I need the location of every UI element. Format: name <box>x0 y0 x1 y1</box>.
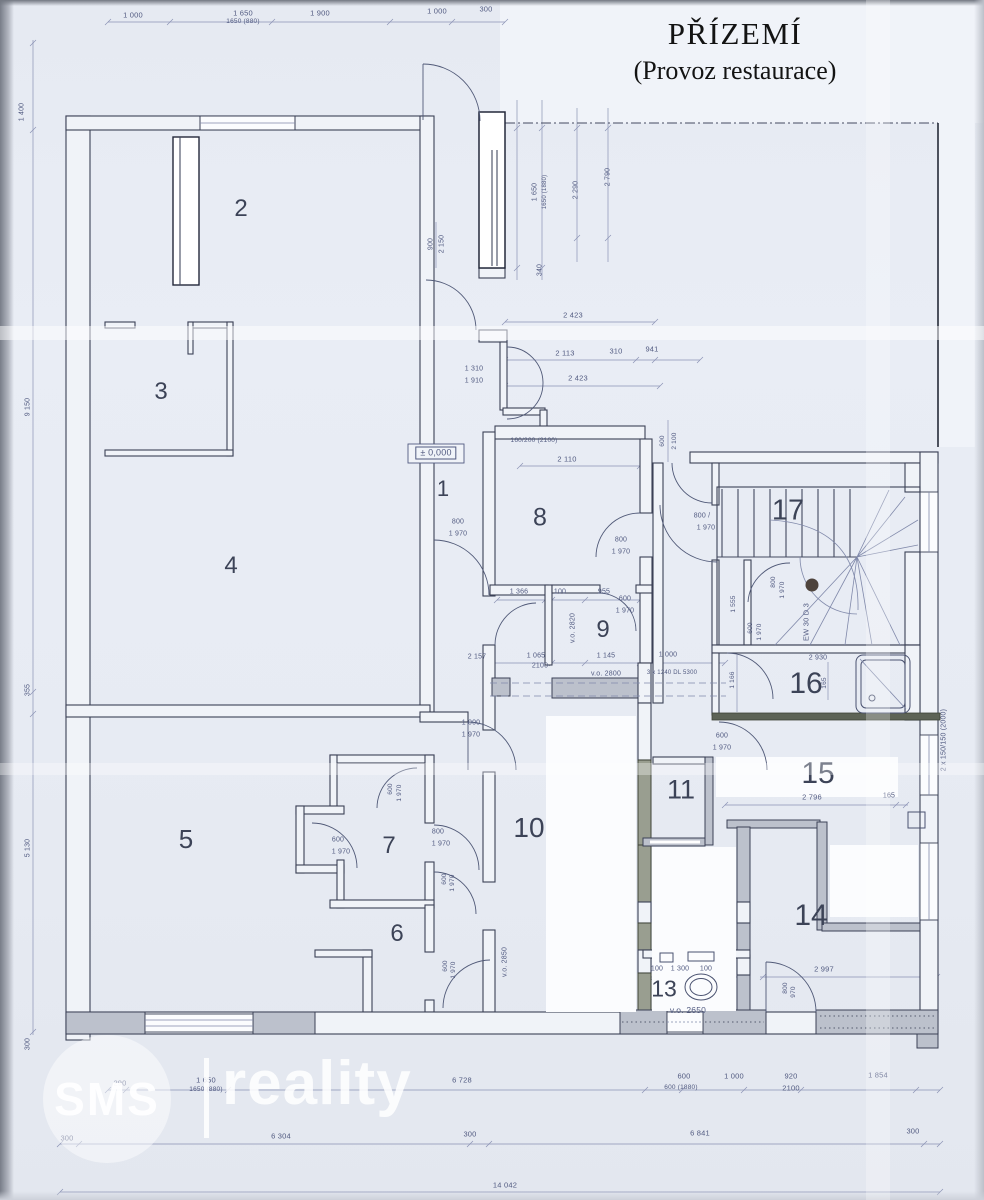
dimension-label: 5 130 <box>25 839 32 858</box>
room-number-11: 11 <box>667 777 695 804</box>
dimension-label: 970 <box>791 986 798 997</box>
dimension-label: 2100 <box>532 663 548 670</box>
dimension-label: 1 300 <box>671 966 690 973</box>
dimension-label: 355 <box>25 684 32 696</box>
dimension-label: 100 <box>651 966 663 973</box>
room-number-15: 15 <box>801 759 834 789</box>
room-number-10: 10 <box>513 814 544 842</box>
dimension-label: 2 423 <box>568 374 588 382</box>
dimension-label: v.o. 2650 <box>670 1006 706 1015</box>
room-number-1: 1 <box>437 478 449 500</box>
dimension-label: 300 <box>479 5 492 13</box>
dimension-label: 1 065 <box>527 653 546 660</box>
dimension-label: 1 970 <box>449 531 468 538</box>
dimension-label: 6 841 <box>690 1129 710 1137</box>
dimension-label: 1650 (880) <box>226 19 259 26</box>
dimension-label: 600 (1880) <box>664 1085 697 1092</box>
dimension-label: 1 650 <box>532 183 539 202</box>
dimension-label: 160/200 (2100) <box>511 438 558 445</box>
dimension-label: v.o. 2820 <box>570 613 577 643</box>
plan-title: PŘÍZEMÍ (Provoz restaurace) <box>505 16 965 86</box>
dimension-label: 1 970 <box>713 745 732 752</box>
dimension-label: 1 970 <box>450 874 457 891</box>
dimension-label: 920 <box>784 1072 797 1080</box>
dimension-label: 2 796 <box>802 793 822 801</box>
dimension-label: 1 555 <box>731 595 738 612</box>
dimension-label: 1 000 <box>724 1072 744 1080</box>
dimension-label: 1 166 <box>730 671 737 688</box>
dimension-label: 1 970 <box>757 623 764 640</box>
room-number-14: 14 <box>794 901 827 931</box>
dimension-label: 1 970 <box>697 525 716 532</box>
dimension-label: 1 366 <box>510 589 529 596</box>
dimension-label: 1 310 <box>465 366 484 373</box>
dimension-label: 2 150 <box>439 235 446 254</box>
plan-title-subtitle: (Provoz restaurace) <box>505 56 965 86</box>
dimension-label: 1 000 <box>427 7 447 15</box>
dimension-label: 100 <box>700 966 712 973</box>
dimension-label: 600 <box>332 837 344 844</box>
dimension-label: 2 157 <box>468 654 487 661</box>
room-number-3: 3 <box>154 380 167 404</box>
dimension-label: 600 <box>716 733 728 740</box>
dimension-label: 600 <box>660 435 667 446</box>
room-number-16: 16 <box>789 669 822 699</box>
room-number-8: 8 <box>533 506 547 531</box>
room-number-13: 13 <box>651 978 677 1001</box>
dimension-label: 1 970 <box>616 608 635 615</box>
dimension-label: 800 <box>783 982 790 993</box>
dimension-label: 1 854 <box>868 1071 888 1079</box>
room-number-5: 5 <box>179 826 193 852</box>
room-number-2: 2 <box>234 197 247 221</box>
dimension-label: 800 <box>615 537 627 544</box>
dimension-label: 3 x 1240 DL 5300 <box>647 670 697 676</box>
dimension-label: 165 <box>822 677 829 688</box>
dimension-label: 2 100 <box>672 432 679 449</box>
dimension-label: 6 728 <box>452 1076 472 1084</box>
dimension-label: 2 110 <box>557 455 576 463</box>
dimension-label: 340 <box>537 264 544 276</box>
room-number-7: 7 <box>382 834 395 858</box>
dimension-label: 800 <box>452 519 464 526</box>
room-number-9: 9 <box>596 618 609 642</box>
dimension-label: 1 000 <box>123 11 143 19</box>
dimension-label: 2 930 <box>809 655 828 662</box>
dimension-label: 2100 <box>782 1084 800 1092</box>
dimension-label: v.o. 2850 <box>502 947 509 977</box>
dimension-label: 1 000 <box>462 720 481 727</box>
room-number-6: 6 <box>390 922 403 946</box>
dimension-label: v.o. 2800 <box>591 671 621 678</box>
room-number-4: 4 <box>224 554 237 578</box>
dimension-label: 2 113 <box>555 349 574 357</box>
dimension-label: 900 <box>428 238 435 250</box>
dimension-label: 1650 (880) <box>189 1087 222 1094</box>
dimension-label: 941 <box>645 345 658 353</box>
dimension-label: 300 <box>906 1127 919 1135</box>
dimension-label: 6 304 <box>271 1132 291 1140</box>
dimension-label: 600 <box>677 1072 690 1080</box>
dimension-label: 600 <box>619 596 631 603</box>
dimension-label: 14 042 <box>493 1181 517 1189</box>
dimension-label: 1 000 <box>659 652 678 659</box>
level-marker-label: ± 0,000 <box>415 447 456 460</box>
dimension-label: 2 997 <box>814 965 834 973</box>
dimension-label: 600 <box>748 622 755 633</box>
dimension-label: 290 <box>113 1079 126 1087</box>
plan-title-main: PŘÍZEMÍ <box>505 16 965 52</box>
dimension-label: 1 650 <box>196 1076 216 1084</box>
dimension-label: 1 970 <box>432 841 451 848</box>
dimension-label: 1 400 <box>19 103 26 122</box>
dimension-label: 2 423 <box>563 311 583 319</box>
dimension-label: 1 970 <box>612 549 631 556</box>
dimension-label: 300 <box>463 1130 476 1138</box>
blueprint-sheet: 123456789101113141516171 0001 6501650 (8… <box>0 0 984 1200</box>
dimension-label: 1 900 <box>310 9 330 17</box>
dimension-label: 1 145 <box>597 653 616 660</box>
dimension-label: 1 910 <box>465 378 484 385</box>
dimension-label: 600 <box>442 873 449 884</box>
dimension-label: 1 970 <box>780 581 787 598</box>
dimension-label: 800 <box>771 576 778 587</box>
dimension-label: 2 790 <box>605 168 612 187</box>
dimension-label: 165 <box>883 793 895 800</box>
dimension-label: 1 650 <box>233 9 253 17</box>
dimension-label: 1 970 <box>462 732 481 739</box>
dimension-label: EW 30 D 3 <box>802 603 810 641</box>
dimension-label: 1 970 <box>451 961 458 978</box>
dimension-label: 600 <box>443 960 450 971</box>
dimension-label: 1 970 <box>397 784 404 801</box>
dimension-label: 1 970 <box>332 849 351 856</box>
dimension-label: 100 <box>554 589 566 596</box>
dimension-label: 2 x 150/150 (2000) <box>941 709 948 771</box>
dimension-label: 955 <box>598 589 610 596</box>
dimension-label: 1650 (1880) <box>542 175 548 210</box>
dimension-label: 300 <box>25 1038 32 1050</box>
dimension-label: 800 / <box>694 513 711 520</box>
dimension-label: 310 <box>609 347 622 355</box>
labels-layer: 123456789101113141516171 0001 6501650 (8… <box>0 0 984 1200</box>
dimension-label: 9 150 <box>25 398 32 417</box>
dimension-label: 2 290 <box>573 181 580 200</box>
dimension-label: 800 <box>432 829 444 836</box>
room-number-17: 17 <box>772 497 804 526</box>
dimension-label: 300 <box>60 1134 73 1142</box>
dimension-label: 600 <box>388 783 395 794</box>
